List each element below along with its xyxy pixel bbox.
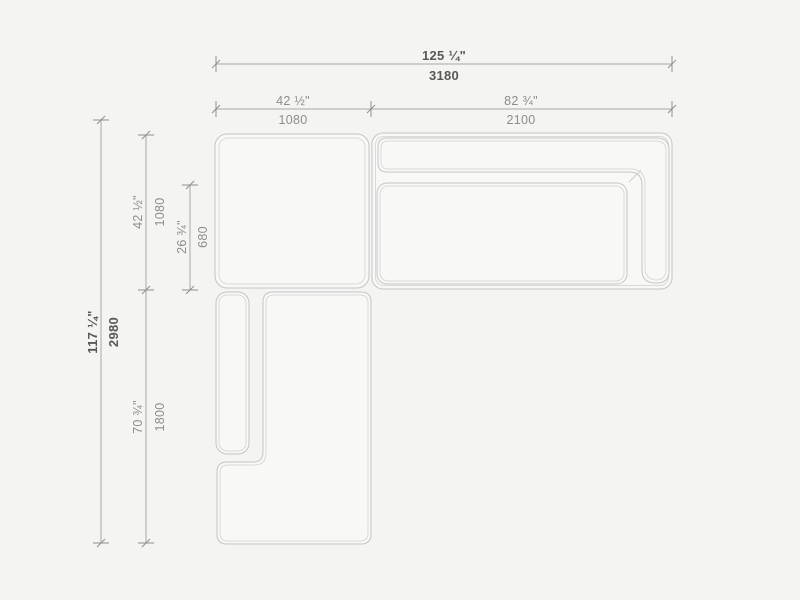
dim-overall-depth: 117 ¼" 2980 bbox=[85, 116, 121, 547]
overall-width-mm-label: 3180 bbox=[429, 68, 459, 83]
corner-width-inches-label: 42 ½" bbox=[276, 94, 310, 108]
plan-drawing: 125 ¼" 3180 42 ½" 1080 82 ¾" 2100 117 ¼" bbox=[0, 0, 800, 600]
drawing-canvas: 125 ¼" 3180 42 ½" 1080 82 ¾" 2100 117 ¼" bbox=[0, 0, 800, 600]
seat-depth-mm-label: 680 bbox=[196, 226, 210, 248]
chaise-length-mm-label: 1800 bbox=[153, 402, 167, 431]
dimension-annotations: 125 ¼" 3180 42 ½" 1080 82 ¾" 2100 117 ¼" bbox=[85, 48, 676, 547]
sofa-width-inches-label: 82 ¾" bbox=[504, 94, 538, 108]
dim-section-widths: 42 ½" 1080 82 ¾" 2100 bbox=[212, 94, 676, 127]
chaise-armrest-cushion bbox=[216, 292, 249, 454]
corner-depth-mm-label: 1080 bbox=[153, 197, 167, 226]
corner-module bbox=[215, 134, 369, 288]
chaise-module bbox=[216, 292, 371, 544]
dim-seat-depth: 26 ¾" 680 bbox=[175, 181, 210, 294]
overall-depth-mm-label: 2980 bbox=[106, 317, 121, 347]
chaise-length-inches-label: 70 ¾" bbox=[131, 400, 145, 434]
furniture-plan bbox=[215, 133, 672, 544]
sofa-module bbox=[372, 133, 672, 289]
dim-overall-width: 125 ¼" 3180 bbox=[212, 48, 676, 83]
corner-width-mm-label: 1080 bbox=[278, 113, 307, 127]
overall-depth-inches-label: 117 ¼" bbox=[85, 310, 100, 353]
seat-depth-inches-label: 26 ¾" bbox=[175, 220, 189, 254]
corner-module-outline bbox=[215, 134, 369, 288]
sofa-width-mm-label: 2100 bbox=[506, 113, 535, 127]
sofa-seat-cushion bbox=[377, 183, 627, 284]
dim-corner-depth: 42 ½" 1080 70 ¾" 1800 bbox=[131, 131, 167, 547]
overall-width-inches-label: 125 ¼" bbox=[422, 48, 466, 63]
corner-depth-inches-label: 42 ½" bbox=[131, 195, 145, 229]
